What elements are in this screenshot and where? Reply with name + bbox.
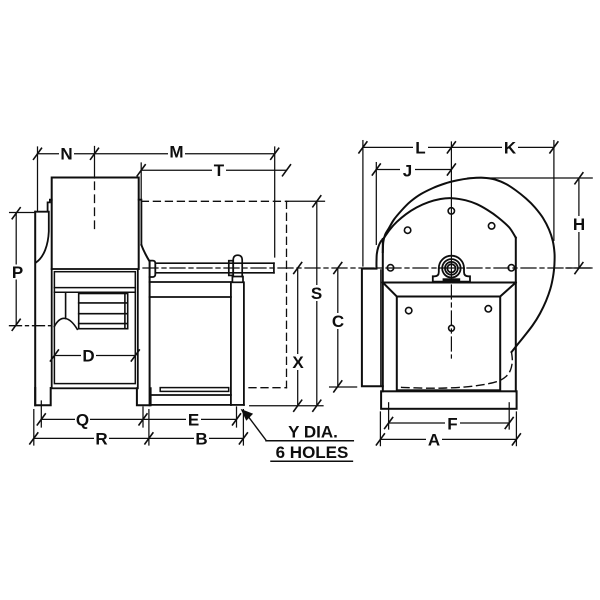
- svg-text:A: A: [428, 431, 440, 450]
- svg-text:N: N: [60, 144, 72, 163]
- svg-text:T: T: [214, 161, 225, 180]
- svg-text:F: F: [447, 414, 457, 433]
- svg-text:K: K: [504, 138, 517, 157]
- svg-text:Q: Q: [76, 410, 89, 429]
- svg-text:D: D: [82, 346, 94, 365]
- svg-text:X: X: [292, 353, 304, 372]
- svg-text:B: B: [195, 429, 207, 448]
- svg-text:J: J: [403, 161, 412, 180]
- svg-text:M: M: [169, 143, 183, 162]
- svg-text:H: H: [573, 215, 585, 234]
- svg-text:C: C: [332, 312, 344, 331]
- svg-text:P: P: [12, 263, 23, 282]
- svg-text:Y DIA.: Y DIA.: [288, 423, 338, 442]
- svg-text:L: L: [415, 138, 425, 157]
- svg-text:E: E: [188, 410, 199, 429]
- svg-text:6 HOLES: 6 HOLES: [276, 443, 349, 462]
- svg-text:S: S: [311, 284, 322, 303]
- svg-text:R: R: [95, 429, 107, 448]
